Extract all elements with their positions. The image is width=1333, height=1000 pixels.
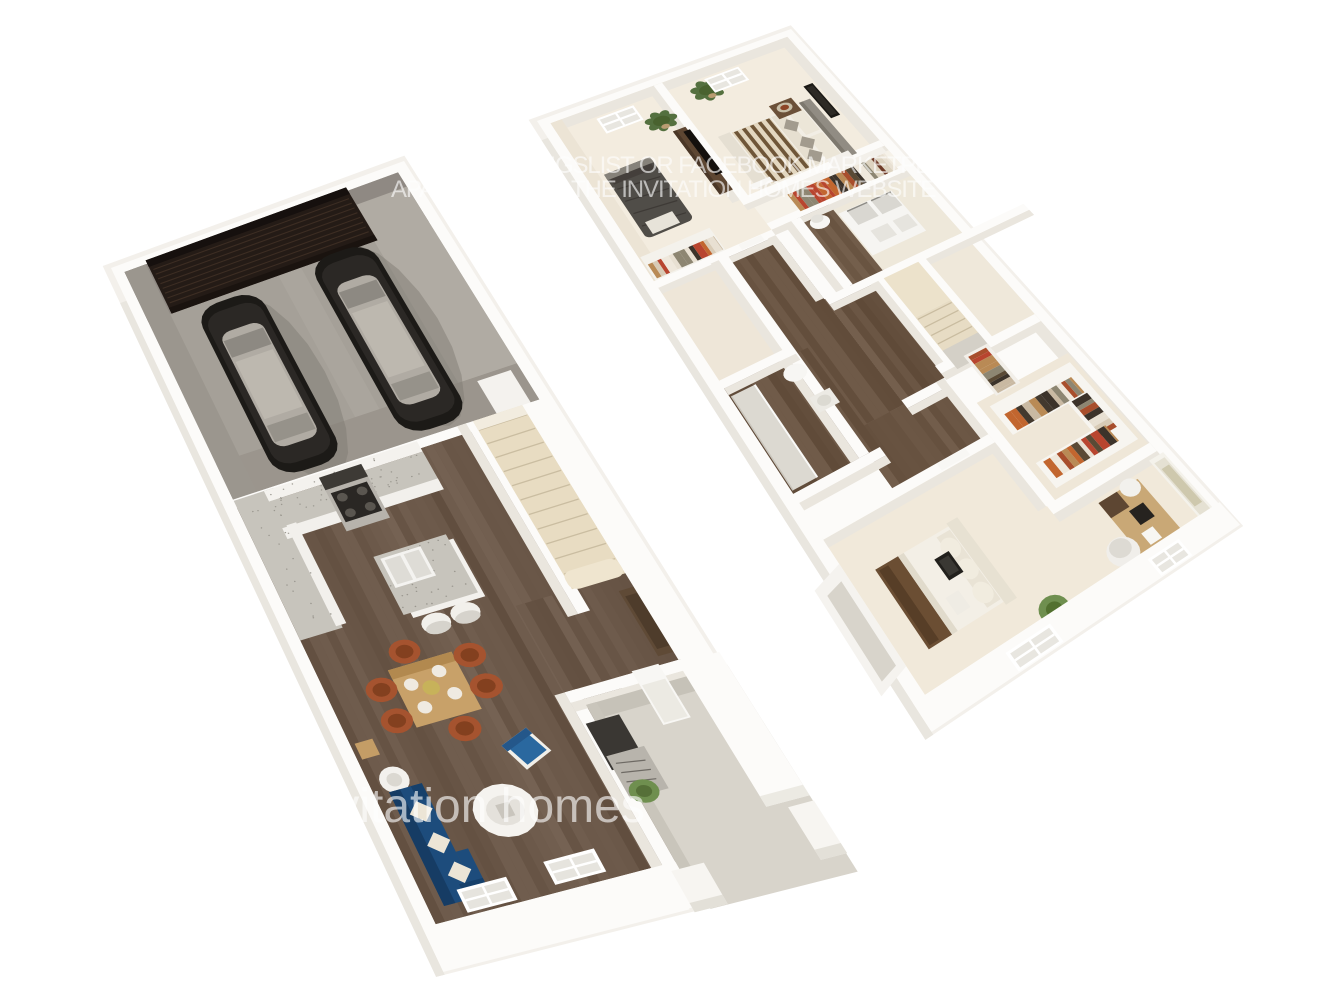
svg-text:invitation homes: invitation homes	[298, 780, 645, 833]
svg-text:APARTMENT ON THE INVITATION HO: APARTMENT ON THE INVITATION HOMES WEBSIT…	[391, 176, 935, 203]
svg-text:CRAIGSLIST OR FACEBOOK MARKETP: CRAIGSLIST OR FACEBOOK MARKETPLACE	[502, 152, 974, 179]
